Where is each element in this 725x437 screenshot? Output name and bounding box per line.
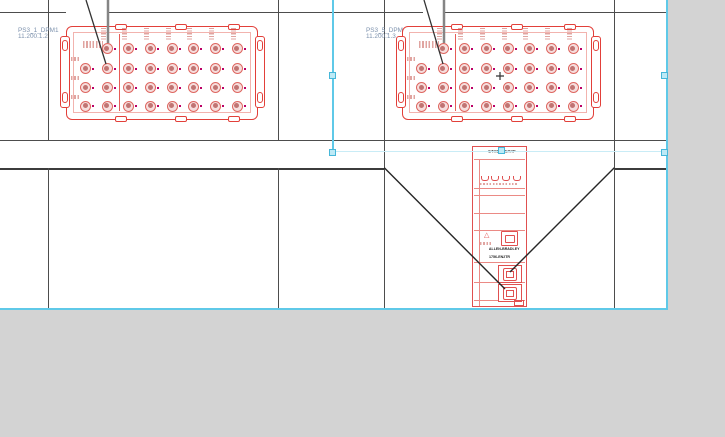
drawing-sheet[interactable]: PS3_1_DPM1 11.200.1.2 PS3_5_DPM1 11.200.… <box>0 0 668 310</box>
selection-handle[interactable] <box>329 149 336 156</box>
leader-line <box>424 0 443 64</box>
app-background: PS3_1_DPM1 11.200.1.2 PS3_5_DPM1 11.200.… <box>0 0 725 437</box>
v-callout-line-right <box>510 168 614 272</box>
selection-handle[interactable] <box>661 72 668 79</box>
selection-handle[interactable] <box>329 72 336 79</box>
sheet-edge-highlight <box>0 308 668 310</box>
selection-center-mark <box>496 72 504 80</box>
selection-handle[interactable] <box>498 147 505 154</box>
leader-line <box>86 0 106 64</box>
v-callout-line-left <box>384 168 505 289</box>
selection-handle[interactable] <box>661 149 668 156</box>
